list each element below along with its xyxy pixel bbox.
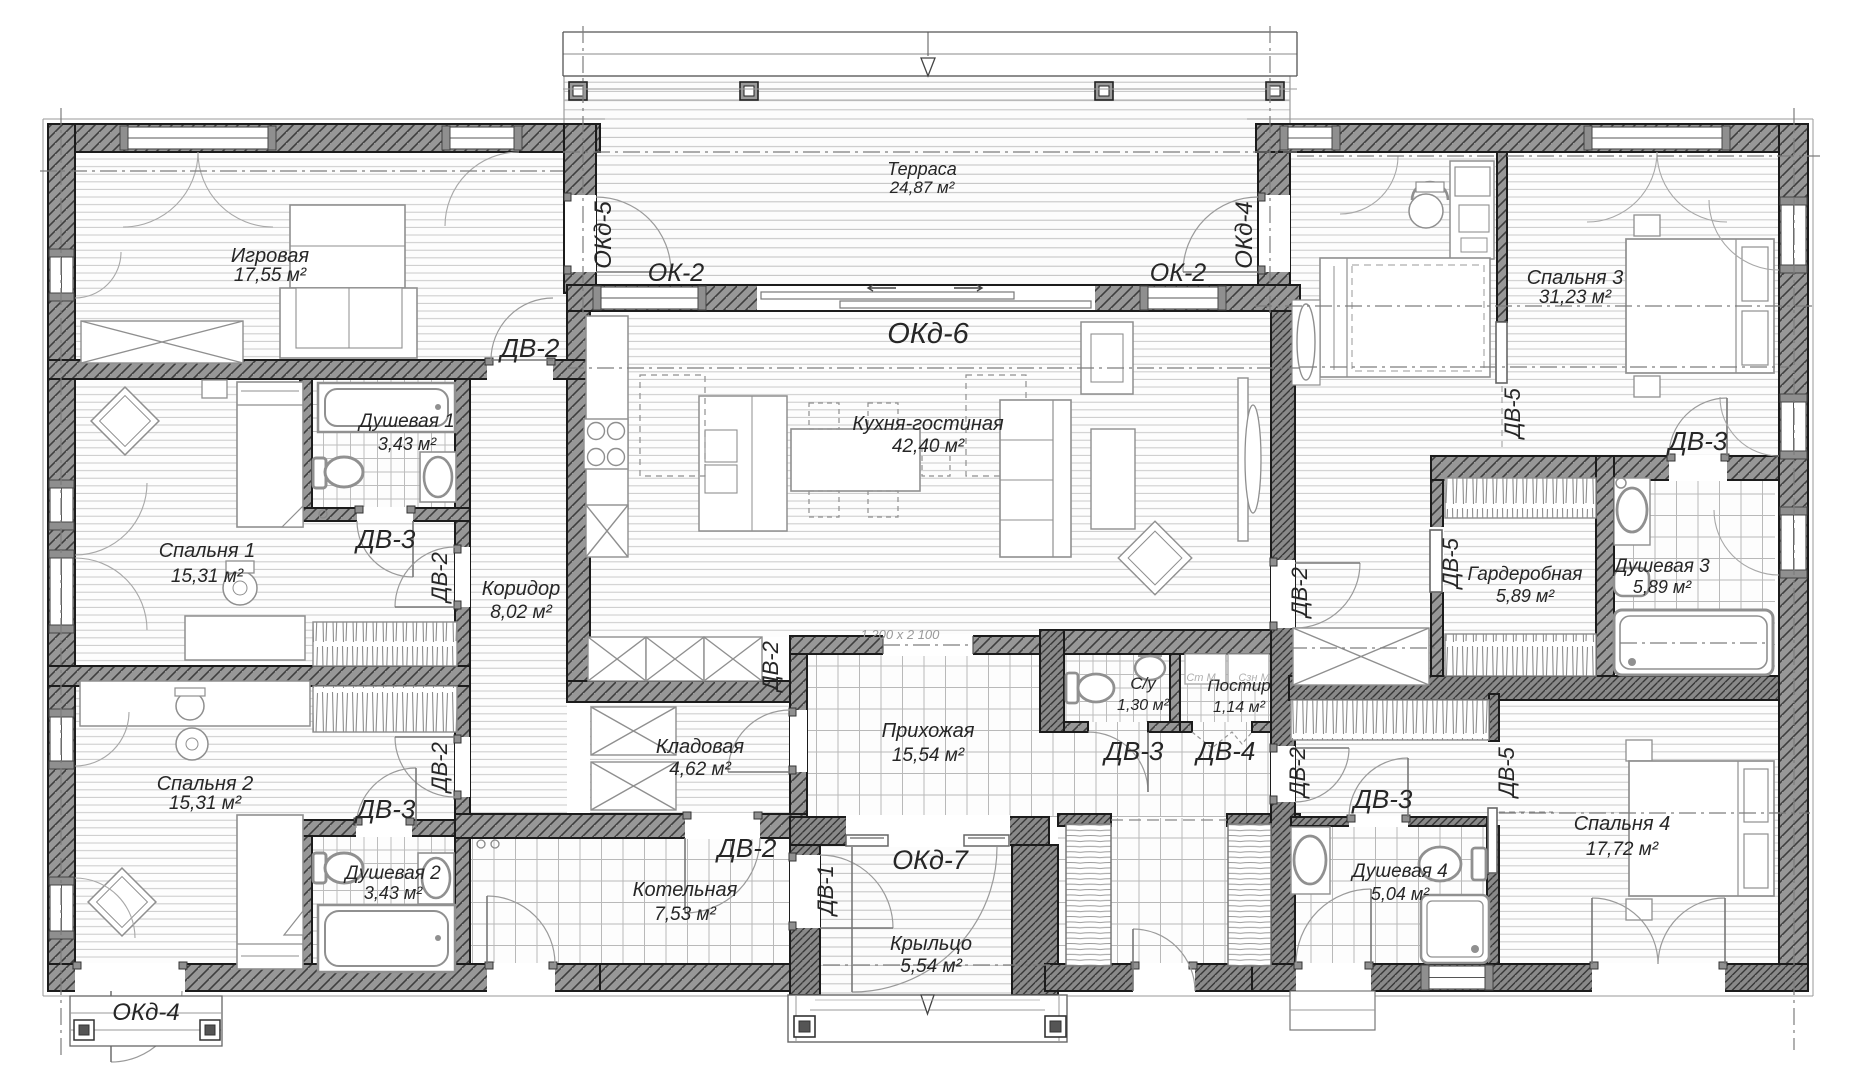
svg-text:ОК-2: ОК-2 (648, 259, 705, 287)
svg-text:15,31 м²: 15,31 м² (169, 793, 242, 814)
svg-text:1 200 х 2 100: 1 200 х 2 100 (861, 627, 941, 642)
svg-text:Спальня 1: Спальня 1 (159, 540, 256, 562)
svg-text:ОКд-4: ОКд-4 (1231, 201, 1258, 268)
svg-text:42,40 м²: 42,40 м² (892, 436, 965, 457)
svg-text:Душевая 4: Душевая 4 (1350, 861, 1448, 882)
svg-text:Спальня 4: Спальня 4 (1574, 813, 1671, 835)
svg-text:8,02 м²: 8,02 м² (490, 602, 552, 623)
svg-text:1,14 м²: 1,14 м² (1213, 699, 1266, 716)
svg-text:ДВ-2: ДВ-2 (1285, 747, 1310, 800)
svg-text:ДВ-2: ДВ-2 (1287, 567, 1312, 620)
svg-text:ОКд-7: ОКд-7 (892, 845, 969, 875)
svg-text:24,87 м²: 24,87 м² (889, 178, 956, 197)
svg-text:5,89 м²: 5,89 м² (1633, 577, 1692, 597)
svg-text:Душевая 2: Душевая 2 (343, 863, 441, 884)
svg-text:ДВ-5: ДВ-5 (1494, 746, 1519, 799)
svg-text:ДВ-2: ДВ-2 (715, 833, 777, 863)
svg-text:3,43 м²: 3,43 м² (364, 883, 423, 903)
svg-text:4,62 м²: 4,62 м² (669, 759, 731, 780)
svg-text:15,31 м²: 15,31 м² (171, 566, 244, 587)
svg-text:Терраса: Терраса (887, 159, 956, 179)
svg-text:ДВ-5: ДВ-5 (1500, 387, 1525, 440)
svg-text:ДВ-3: ДВ-3 (1666, 426, 1728, 456)
svg-text:15,54 м²: 15,54 м² (892, 745, 965, 766)
svg-text:С/у: С/у (1130, 674, 1157, 693)
svg-text:ОКд-4: ОКд-4 (112, 999, 179, 1026)
svg-text:Прихожая: Прихожая (882, 720, 975, 742)
svg-text:ДВ-2: ДВ-2 (427, 552, 452, 605)
svg-text:ДВ-1: ДВ-1 (813, 865, 838, 918)
svg-text:7,53 м²: 7,53 м² (654, 904, 716, 925)
svg-text:ДВ-2: ДВ-2 (427, 742, 452, 795)
svg-text:ОК-2: ОК-2 (1150, 259, 1207, 287)
svg-text:Кладовая: Кладовая (656, 736, 744, 758)
svg-text:Котельная: Котельная (633, 879, 738, 901)
svg-text:Душевая 3: Душевая 3 (1612, 556, 1710, 577)
svg-text:ОКд-5: ОКд-5 (590, 201, 617, 269)
svg-text:ДВ-2: ДВ-2 (498, 333, 560, 363)
svg-text:Кухня-гостиная: Кухня-гостиная (852, 413, 1004, 435)
svg-text:Коридор: Коридор (482, 578, 560, 600)
svg-text:ДВ-3: ДВ-3 (1351, 784, 1413, 814)
svg-text:ДВ-3: ДВ-3 (1102, 736, 1164, 766)
svg-text:Сзн М: Сзн М (1238, 672, 1270, 684)
svg-text:5,89 м²: 5,89 м² (1496, 586, 1555, 606)
svg-text:5,54 м²: 5,54 м² (900, 956, 962, 977)
svg-text:ДВ-2: ДВ-2 (758, 641, 783, 694)
svg-text:ДВ-4: ДВ-4 (1194, 736, 1256, 766)
svg-text:3,43 м²: 3,43 м² (378, 434, 437, 454)
svg-text:Спальня 3: Спальня 3 (1527, 267, 1624, 289)
svg-text:ДВ-3: ДВ-3 (354, 524, 416, 554)
svg-text:17,72 м²: 17,72 м² (1586, 839, 1659, 860)
svg-text:Спальня 2: Спальня 2 (157, 773, 254, 795)
svg-text:Гардеробная: Гардеробная (1468, 564, 1583, 585)
svg-text:Ст М: Ст М (1186, 672, 1216, 684)
svg-text:31,23 м²: 31,23 м² (1539, 287, 1612, 308)
svg-text:17,55 м²: 17,55 м² (234, 265, 307, 286)
svg-text:ОКд-6: ОКд-6 (887, 318, 969, 350)
svg-text:Душевая 1: Душевая 1 (357, 411, 455, 432)
svg-text:5,04 м²: 5,04 м² (1371, 884, 1430, 904)
svg-text:ДВ-3: ДВ-3 (354, 794, 416, 824)
svg-text:ДВ-5: ДВ-5 (1438, 537, 1463, 590)
svg-text:1,30 м²: 1,30 м² (1117, 697, 1170, 714)
svg-text:Крыльцо: Крыльцо (890, 933, 972, 955)
svg-text:Игровая: Игровая (231, 245, 310, 267)
